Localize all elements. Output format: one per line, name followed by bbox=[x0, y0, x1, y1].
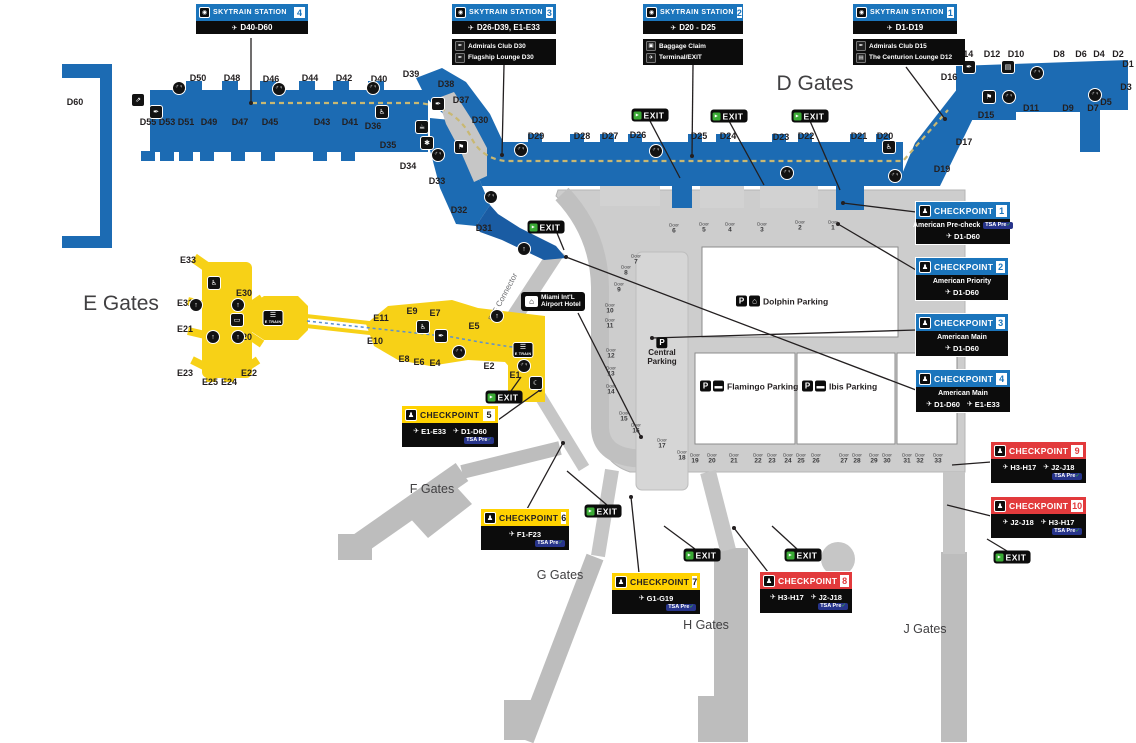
exit-badge: ▸EXIT bbox=[792, 110, 829, 123]
checkpoint-title: CHECKPOINT bbox=[1009, 446, 1068, 456]
station-service-row: ✒Flagship Lounge D30 bbox=[455, 53, 553, 63]
door-label-19: Door19 bbox=[690, 454, 700, 465]
skytrain-icon: ◉ bbox=[199, 7, 210, 18]
security-officer-icon: ♟ bbox=[994, 445, 1006, 457]
gate-range: F1-F23 bbox=[517, 530, 541, 539]
airplane-icon: ✈ bbox=[509, 530, 515, 538]
skytrain-icon: ◉ bbox=[856, 7, 867, 18]
gate-range-chip: ✈H3-H17 bbox=[770, 593, 804, 602]
airplane-icon: ✈ bbox=[811, 593, 817, 601]
skytrain-station-gates: ✈D26-D39, E1-E33 bbox=[452, 21, 556, 34]
checkpoint-details: ✈G1-G19TSA Pre✓ bbox=[612, 590, 700, 614]
door-label-4: Door4 bbox=[725, 223, 735, 234]
gate-range-chip: ✈G1-G19 bbox=[639, 594, 674, 603]
gate-label-d16: D16 bbox=[941, 72, 958, 82]
baggage-icon: ▣ bbox=[646, 41, 656, 51]
checkpoint-number: 4 bbox=[996, 373, 1007, 385]
parking-icons: P bbox=[657, 337, 668, 348]
door-number: 18 bbox=[677, 455, 687, 462]
gate-range: J2-J18 bbox=[819, 593, 842, 602]
checkpoint-gates: ✈H3-H17✈J2-J18 bbox=[763, 591, 849, 603]
gate-label-d8: D8 bbox=[1053, 49, 1065, 59]
gate-label-d33: D33 bbox=[429, 176, 446, 186]
gate-label-d1: D1 bbox=[1122, 59, 1134, 69]
train-icon: ☰ bbox=[270, 312, 276, 320]
airplane-icon: ✈ bbox=[1041, 518, 1047, 526]
gate-label-d48: D48 bbox=[224, 73, 241, 83]
station-service-row: ▤The Centurion Lounge D12 bbox=[856, 53, 962, 63]
tsa-precheck-badge: TSA Pre✓ bbox=[983, 222, 1013, 229]
checkpoint-9-callout: ♟CHECKPOINT9✈H3-H17✈J2-J18TSA Pre✓ bbox=[991, 442, 1086, 483]
exit-runner-icon: ▸ bbox=[794, 112, 802, 120]
checkpoint-header: ♟CHECKPOINT10 bbox=[991, 497, 1086, 514]
skytrain-station-gates: ✈D1-D19 bbox=[853, 21, 957, 34]
door-number: 24 bbox=[783, 458, 793, 465]
door-number: 20 bbox=[707, 458, 717, 465]
lane-name-text: American Pre-check bbox=[913, 222, 980, 229]
exit-label: EXIT bbox=[540, 222, 561, 232]
parking-icon: P bbox=[802, 381, 813, 392]
checkpoint-title: CHECKPOINT bbox=[778, 576, 837, 586]
elevator-icon: ↑ bbox=[190, 299, 202, 311]
restroom-icon: ♂♀ bbox=[432, 149, 444, 161]
restroom-icon: ♂♀ bbox=[1031, 67, 1043, 79]
checkpoint-header: ♟CHECKPOINT8 bbox=[760, 572, 852, 589]
gate-label-d31: D31 bbox=[476, 223, 493, 233]
airport-hotel-callout: ⌂ Miami Int'L Airport Hotel bbox=[521, 292, 585, 311]
door-number: 27 bbox=[839, 458, 849, 465]
car-icon: ▬ bbox=[713, 381, 724, 392]
exit-badge: ▸EXIT bbox=[711, 110, 748, 123]
gate-range-chip: ✈D1-D60 bbox=[946, 232, 980, 241]
station-service-row: ▣Baggage Claim bbox=[646, 41, 740, 51]
tsa-precheck-badge: TSA Pre✓ bbox=[535, 540, 565, 547]
door-label-33: Door33 bbox=[933, 454, 943, 465]
door-number: 11 bbox=[605, 323, 615, 330]
door-label-31: Door31 bbox=[902, 454, 912, 465]
exit-label: EXIT bbox=[723, 111, 744, 121]
door-label-20: Door20 bbox=[707, 454, 717, 465]
door-label-11: Door11 bbox=[605, 319, 615, 330]
checkpoint-details: American Priority✈D1-D60 bbox=[916, 275, 1008, 300]
lane-name-text: American Main bbox=[937, 334, 987, 341]
exit-label: EXIT bbox=[797, 550, 818, 560]
gate-label-d36: D36 bbox=[365, 121, 382, 131]
exit-label: EXIT bbox=[696, 550, 717, 560]
skytrain-station-3-callout: ◉SKYTRAIN STATION3✈D26-D39, E1-E33✒Admir… bbox=[452, 4, 556, 65]
checkpoint-title: CHECKPOINT bbox=[934, 206, 993, 216]
checkpoint-details: ✈F1-F23TSA Pre✓ bbox=[481, 526, 569, 550]
exit-runner-icon: ▸ bbox=[787, 551, 795, 559]
skytrain-station-title: SKYTRAIN STATION bbox=[870, 9, 944, 16]
region-title-j-gates: J Gates bbox=[903, 622, 946, 636]
pet-icon: ✱ bbox=[421, 137, 433, 149]
gate-label-d25: D25 bbox=[691, 131, 708, 141]
checkpoint-title: CHECKPOINT bbox=[1009, 501, 1068, 511]
tsa-row: TSA Pre✓ bbox=[994, 473, 1083, 481]
lounge-moon-icon: ☾ bbox=[530, 377, 542, 389]
gate-range: D40-D60 bbox=[240, 23, 272, 32]
gate-label-d35: D35 bbox=[380, 140, 397, 150]
gate-label-d23: D23 bbox=[773, 132, 790, 142]
gate-label-d47: D47 bbox=[232, 117, 249, 127]
gate-range-chip: ✈H3-H17 bbox=[1041, 518, 1075, 527]
door-number: 21 bbox=[729, 458, 739, 465]
gate-range: E1-E33 bbox=[975, 400, 1000, 409]
e-train-station-marker: ☰E TRAIN bbox=[514, 343, 533, 357]
lane-name-text: American Priority bbox=[933, 278, 991, 285]
tsa-row: TSA Pre✓ bbox=[994, 528, 1083, 536]
gate-label-d44: D44 bbox=[302, 73, 319, 83]
tsa-check-icon: ✓ bbox=[487, 437, 492, 443]
lounge-icon: ✒ bbox=[435, 330, 447, 342]
gate-range-chip: ✈D1-D60 bbox=[945, 344, 979, 353]
transit-icon: ▭ bbox=[231, 314, 243, 326]
checkpoint-number: 8 bbox=[840, 575, 849, 587]
parking-label-flamingo: P▬Flamingo Parking bbox=[700, 381, 798, 392]
flamingo-parking-area bbox=[695, 353, 795, 444]
security-officer-icon: ♟ bbox=[405, 409, 417, 421]
exit-badge: ▸EXIT bbox=[994, 551, 1031, 564]
door-label-25: Door25 bbox=[796, 454, 806, 465]
skytrain-station-gates: ✈D40-D60 bbox=[196, 21, 308, 34]
skytrain-station-title: SKYTRAIN STATION bbox=[469, 9, 543, 16]
dolphin-parking-area bbox=[702, 247, 898, 337]
checkpoint-lane-name: American Main bbox=[919, 333, 1005, 342]
tsa-precheck-text: TSA Pre bbox=[537, 540, 558, 546]
door-label-26: Door26 bbox=[811, 454, 821, 465]
door-label-27: Door27 bbox=[839, 454, 849, 465]
door-label-17: Door17 bbox=[657, 439, 667, 450]
gate-range: H3-H17 bbox=[778, 593, 804, 602]
gate-label-d53: D53 bbox=[159, 117, 176, 127]
door-number: 15 bbox=[619, 416, 629, 423]
skytrain-station-number: 1 bbox=[947, 7, 954, 18]
wheelchair-icon: ♿ bbox=[417, 321, 429, 333]
gate-range: D1-D19 bbox=[896, 23, 924, 32]
checkpoint-title: CHECKPOINT bbox=[630, 577, 689, 587]
checkpoint-gates: ✈D1-D60 bbox=[919, 286, 1005, 298]
door-label-22: Door22 bbox=[753, 454, 763, 465]
station-service-label: Flagship Lounge D30 bbox=[468, 54, 534, 61]
tsa-check-icon: ✓ bbox=[841, 603, 846, 609]
station-service-row: ✒Admirals Club D15 bbox=[856, 41, 962, 51]
door-label-5: Door5 bbox=[699, 223, 709, 234]
door-label-2: Door2 bbox=[795, 221, 805, 232]
gate-range-chip: ✈E1-E33 bbox=[967, 400, 1000, 409]
door-number: 14 bbox=[606, 389, 616, 396]
airplane-icon: ✈ bbox=[946, 232, 952, 240]
gate-label-d3: D3 bbox=[1120, 82, 1132, 92]
garage-icon: ⌂ bbox=[749, 296, 760, 307]
door-label-29: Door29 bbox=[869, 454, 879, 465]
door-number: 8 bbox=[621, 270, 631, 277]
gate-range: D1-D60 bbox=[953, 344, 979, 353]
e-train-label: E TRAIN bbox=[515, 352, 532, 356]
exit-label: EXIT bbox=[1006, 552, 1027, 562]
door-label-18: Door18 bbox=[677, 451, 687, 462]
checkpoint-number: 5 bbox=[483, 409, 495, 421]
tsa-precheck-badge: TSA Pre✓ bbox=[464, 437, 494, 444]
station-service-row: ✈Terminal/EXIT bbox=[646, 53, 740, 63]
station-service-label: Admirals Club D30 bbox=[468, 43, 526, 50]
gate-range: D1-D60 bbox=[934, 400, 960, 409]
gate-label-e8: E8 bbox=[398, 354, 409, 364]
checkpoint-number: 10 bbox=[1071, 500, 1083, 512]
security-officer-icon: ♟ bbox=[763, 575, 775, 587]
security-officer-icon: ♟ bbox=[484, 512, 496, 524]
door-number: 23 bbox=[767, 458, 777, 465]
coffee-icon: ☕ bbox=[416, 121, 428, 133]
elevator-icon: ↑ bbox=[491, 310, 503, 322]
airplane-icon: ✈ bbox=[926, 400, 932, 408]
skytrain-station-title: SKYTRAIN STATION bbox=[660, 9, 734, 16]
airplane-icon: ✈ bbox=[967, 400, 973, 408]
skytrain-station-header: ◉SKYTRAIN STATION1 bbox=[853, 4, 957, 21]
checkpoint-number: 9 bbox=[1071, 445, 1083, 457]
region-title-e-gates: E Gates bbox=[83, 292, 159, 316]
gate-label-d34: D34 bbox=[400, 161, 417, 171]
gate-label-d7: D7 bbox=[1087, 103, 1099, 113]
gate-label-d20: D20 bbox=[877, 131, 894, 141]
door-number: 19 bbox=[690, 458, 700, 465]
wheelchair-icon: ♿ bbox=[883, 141, 895, 153]
restroom-icon: ♂♀ bbox=[367, 82, 379, 94]
skytrain-station-title: SKYTRAIN STATION bbox=[213, 9, 287, 16]
skytrain-station-4-callout: ◉SKYTRAIN STATION4✈D40-D60 bbox=[196, 4, 308, 34]
gate-label-e11: E11 bbox=[373, 313, 389, 323]
door-label-28: Door28 bbox=[852, 454, 862, 465]
door-number: 32 bbox=[915, 458, 925, 465]
door-number: 4 bbox=[725, 227, 735, 234]
gate-label-e4: E4 bbox=[429, 358, 440, 368]
airplane-icon: ✈ bbox=[453, 427, 459, 435]
tsa-row: TSA Pre✓ bbox=[484, 540, 566, 548]
e-train-station-marker: ☰E TRAIN bbox=[264, 311, 283, 325]
gate-range-chip: ✈H3-H17 bbox=[1003, 463, 1037, 472]
region-title-d-gates: D Gates bbox=[776, 72, 853, 96]
exit-runner-icon: ▸ bbox=[587, 507, 595, 515]
tsa-precheck-text: TSA Pre bbox=[985, 222, 1006, 228]
gate-label-d45: D45 bbox=[262, 117, 279, 127]
checkpoint-3-callout: ♟CHECKPOINT3American Main✈D1-D60 bbox=[916, 314, 1008, 356]
parking-name: Flamingo Parking bbox=[727, 381, 798, 391]
tsa-precheck-text: TSA Pre bbox=[820, 603, 841, 609]
exit-label: EXIT bbox=[597, 506, 618, 516]
checkpoint-number: 3 bbox=[996, 317, 1005, 329]
tsa-precheck-text: TSA Pre bbox=[668, 604, 689, 610]
door-label-30: Door30 bbox=[882, 454, 892, 465]
flag-icon: ⚑ bbox=[983, 91, 995, 103]
gate-label-d2: D2 bbox=[1112, 49, 1124, 59]
exit-badge: ▸EXIT bbox=[632, 109, 669, 122]
gate-range-chip: ✈J2-J18 bbox=[1043, 463, 1074, 472]
gate-label-e21: E21 bbox=[177, 324, 193, 334]
gate-label-e30: E30 bbox=[236, 288, 252, 298]
tsa-precheck-badge: TSA Pre✓ bbox=[1052, 528, 1082, 535]
checkpoint-header: ♟CHECKPOINT4 bbox=[916, 370, 1010, 387]
elevator-icon: ↑ bbox=[207, 331, 219, 343]
gate-label-d4: D4 bbox=[1093, 49, 1105, 59]
door-number: 7 bbox=[631, 259, 641, 266]
skytrain-station-header: ◉SKYTRAIN STATION2 bbox=[643, 4, 743, 21]
security-officer-icon: ♟ bbox=[919, 261, 931, 273]
restroom-icon: ♂♀ bbox=[485, 191, 497, 203]
checkpoint-details: American Pre-checkTSA Pre✓✈D1-D60 bbox=[916, 219, 1010, 244]
parking-name: Ibis Parking bbox=[829, 381, 877, 391]
skytrain-station-2-callout: ◉SKYTRAIN STATION2✈D20 - D25▣Baggage Cla… bbox=[643, 4, 743, 65]
gate-range: D1-D60 bbox=[954, 232, 980, 241]
door-label-32: Door32 bbox=[915, 454, 925, 465]
gate-label-d19: D19 bbox=[934, 164, 951, 174]
gate-label-d17: D17 bbox=[956, 137, 973, 147]
wheelchair-icon: ♿ bbox=[376, 106, 388, 118]
checkpoint-details: ✈J2-J18✈H3-H17TSA Pre✓ bbox=[991, 514, 1086, 538]
gate-label-e2: E2 bbox=[483, 361, 494, 371]
airplane-icon: ✈ bbox=[639, 594, 645, 602]
train-icon: ☰ bbox=[520, 344, 526, 352]
tsa-check-icon: ✓ bbox=[1006, 222, 1011, 228]
gate-range: H3-H17 bbox=[1049, 518, 1075, 527]
exit-badge: ▸EXIT bbox=[585, 505, 622, 518]
tsa-precheck-badge: TSA Pre✓ bbox=[1052, 473, 1082, 480]
parking-icon: P bbox=[657, 337, 668, 348]
skytrain-station-number: 3 bbox=[546, 7, 553, 18]
airplane-icon: ✈ bbox=[468, 24, 474, 32]
gate-label-e22: E22 bbox=[241, 368, 257, 378]
gate-range: G1-G19 bbox=[647, 594, 674, 603]
door-number: 25 bbox=[796, 458, 806, 465]
gate-range-chip: ✈F1-F23 bbox=[509, 530, 541, 539]
gate-label-d60: D60 bbox=[67, 97, 84, 107]
region-title-h-gates: H Gates bbox=[683, 618, 729, 632]
gate-label-d15: D15 bbox=[978, 110, 995, 120]
gate-label-e1: E1 bbox=[509, 370, 520, 380]
gate-label-d28: D28 bbox=[574, 131, 591, 141]
airport-terminal-map: ⌂ Miami Int'L Airport Hotel D-E Connecto… bbox=[0, 0, 1136, 743]
gate-label-e7: E7 bbox=[429, 308, 440, 318]
door-number: 30 bbox=[882, 458, 892, 465]
gate-range-chip: ✈D1-D60 bbox=[945, 288, 979, 297]
checkpoint-gates: ✈J2-J18✈H3-H17 bbox=[994, 516, 1083, 528]
tsa-check-icon: ✓ bbox=[558, 540, 563, 546]
door-number: 16 bbox=[631, 428, 641, 435]
tsa-precheck-text: TSA Pre bbox=[1054, 473, 1075, 479]
door-label-6: Door6 bbox=[669, 224, 679, 235]
gate-label-e9: E9 bbox=[406, 306, 417, 316]
skytrain-icon: ◉ bbox=[455, 7, 466, 18]
station-services-box: ✒Admirals Club D15▤The Centurion Lounge … bbox=[853, 39, 965, 65]
tsa-precheck-badge: TSA Pre✓ bbox=[818, 603, 848, 610]
checkpoint-header: ♟CHECKPOINT7 bbox=[612, 573, 700, 590]
gate-label-e33: E33 bbox=[180, 255, 196, 265]
hotel-name-line1: Miami Int'L bbox=[541, 294, 581, 301]
station-service-label: Terminal/EXIT bbox=[659, 54, 702, 61]
tsa-check-icon: ✓ bbox=[1075, 473, 1080, 479]
sign-icon: ▤ bbox=[856, 53, 866, 63]
checkpoint-title: CHECKPOINT bbox=[420, 410, 479, 420]
door-number: 10 bbox=[605, 308, 615, 315]
sign-icon: ▤ bbox=[1002, 61, 1014, 73]
door-label-1: Door1 bbox=[828, 221, 838, 232]
door-number: 12 bbox=[606, 353, 616, 360]
checkpoint-1-callout: ♟CHECKPOINT1American Pre-checkTSA Pre✓✈D… bbox=[916, 202, 1010, 244]
checkpoint-details: ✈H3-H17✈J2-J18TSA Pre✓ bbox=[760, 589, 852, 613]
checkpoint-10-callout: ♟CHECKPOINT10✈J2-J18✈H3-H17TSA Pre✓ bbox=[991, 497, 1086, 538]
gate-label-e25: E25 bbox=[202, 377, 218, 387]
checkpoint-details: American Main✈D1-D60 bbox=[916, 331, 1008, 356]
gate-label-d9: D9 bbox=[1062, 103, 1074, 113]
restroom-icon: ♂♀ bbox=[273, 83, 285, 95]
checkpoint-header: ♟CHECKPOINT3 bbox=[916, 314, 1008, 331]
door-label-16: Door16 bbox=[631, 424, 641, 435]
checkpoint-gates: ✈D1-D60 bbox=[919, 342, 1005, 354]
door-label-15: Door15 bbox=[619, 412, 629, 423]
parking-icon: P bbox=[736, 296, 747, 307]
station-service-label: Baggage Claim bbox=[659, 43, 706, 50]
restroom-icon: ♂♀ bbox=[518, 360, 530, 372]
checkpoint-number: 7 bbox=[692, 576, 697, 588]
airplane-icon: ✈ bbox=[670, 24, 676, 32]
gate-label-d42: D42 bbox=[336, 73, 353, 83]
elevator-icon: ↑ bbox=[518, 243, 530, 255]
gate-range: E1-E33 bbox=[421, 427, 446, 436]
gate-label-e24: E24 bbox=[221, 377, 237, 387]
gate-range: D20 - D25 bbox=[679, 23, 715, 32]
parking-label-ibis: P▬Ibis Parking bbox=[802, 381, 877, 392]
security-officer-icon: ♟ bbox=[994, 500, 1006, 512]
checkpoint-details: ✈H3-H17✈J2-J18TSA Pre✓ bbox=[991, 459, 1086, 483]
gate-label-d26: D26 bbox=[630, 130, 647, 140]
restroom-icon: ♂♀ bbox=[889, 170, 901, 182]
security-officer-icon: ♟ bbox=[919, 317, 931, 329]
checkpoint-number: 1 bbox=[996, 205, 1007, 217]
door-label-14: Door14 bbox=[606, 385, 616, 396]
skytrain-icon: ◉ bbox=[646, 7, 657, 18]
checkpoint-header: ♟CHECKPOINT9 bbox=[991, 442, 1086, 459]
exit-label: EXIT bbox=[804, 111, 825, 121]
gate-range-chip: ✈E1-E33 bbox=[413, 427, 446, 436]
gate-label-d43: D43 bbox=[314, 117, 331, 127]
exit-runner-icon: ▸ bbox=[488, 393, 496, 401]
checkpoint-header: ♟CHECKPOINT6 bbox=[481, 509, 569, 526]
checkpoint-title: CHECKPOINT bbox=[499, 513, 558, 523]
exit-runner-icon: ▸ bbox=[713, 112, 721, 120]
exit-badge: ▸EXIT bbox=[684, 549, 721, 562]
airplane-icon: ✈ bbox=[1003, 518, 1009, 526]
gate-range-chip: ✈J2-J18 bbox=[1003, 518, 1034, 527]
gate-range-chip: ✈D1-D60 bbox=[453, 427, 487, 436]
skytrain-station-1-callout: ◉SKYTRAIN STATION1✈D1-D19✒Admirals Club … bbox=[853, 4, 957, 65]
checkpoint-title: CHECKPOINT bbox=[934, 262, 993, 272]
exit-runner-icon: ▸ bbox=[686, 551, 694, 559]
restroom-icon: ♂♀ bbox=[453, 346, 465, 358]
restroom-icon: ♂♀ bbox=[650, 145, 662, 157]
gate-label-d37: D37 bbox=[453, 95, 470, 105]
tsa-row: TSA Pre✓ bbox=[763, 603, 849, 611]
exit-label: EXIT bbox=[498, 392, 519, 402]
security-officer-icon: ♟ bbox=[615, 576, 627, 588]
lounge-icon: ✒ bbox=[856, 41, 866, 51]
gate-label-e10: E10 bbox=[367, 336, 383, 346]
checkpoint-6-callout: ♟CHECKPOINT6✈F1-F23TSA Pre✓ bbox=[481, 509, 569, 550]
tsa-row: TSA Pre✓ bbox=[615, 604, 697, 612]
station-services-box: ▣Baggage Claim✈Terminal/EXIT bbox=[643, 39, 743, 65]
checkpoint-title: CHECKPOINT bbox=[934, 318, 993, 328]
security-officer-icon: ♟ bbox=[919, 205, 931, 217]
checkpoint-gates: ✈F1-F23 bbox=[484, 528, 566, 540]
checkpoint-5-callout: ♟CHECKPOINT5✈E1-E33✈D1-D60TSA Pre✓ bbox=[402, 406, 498, 447]
